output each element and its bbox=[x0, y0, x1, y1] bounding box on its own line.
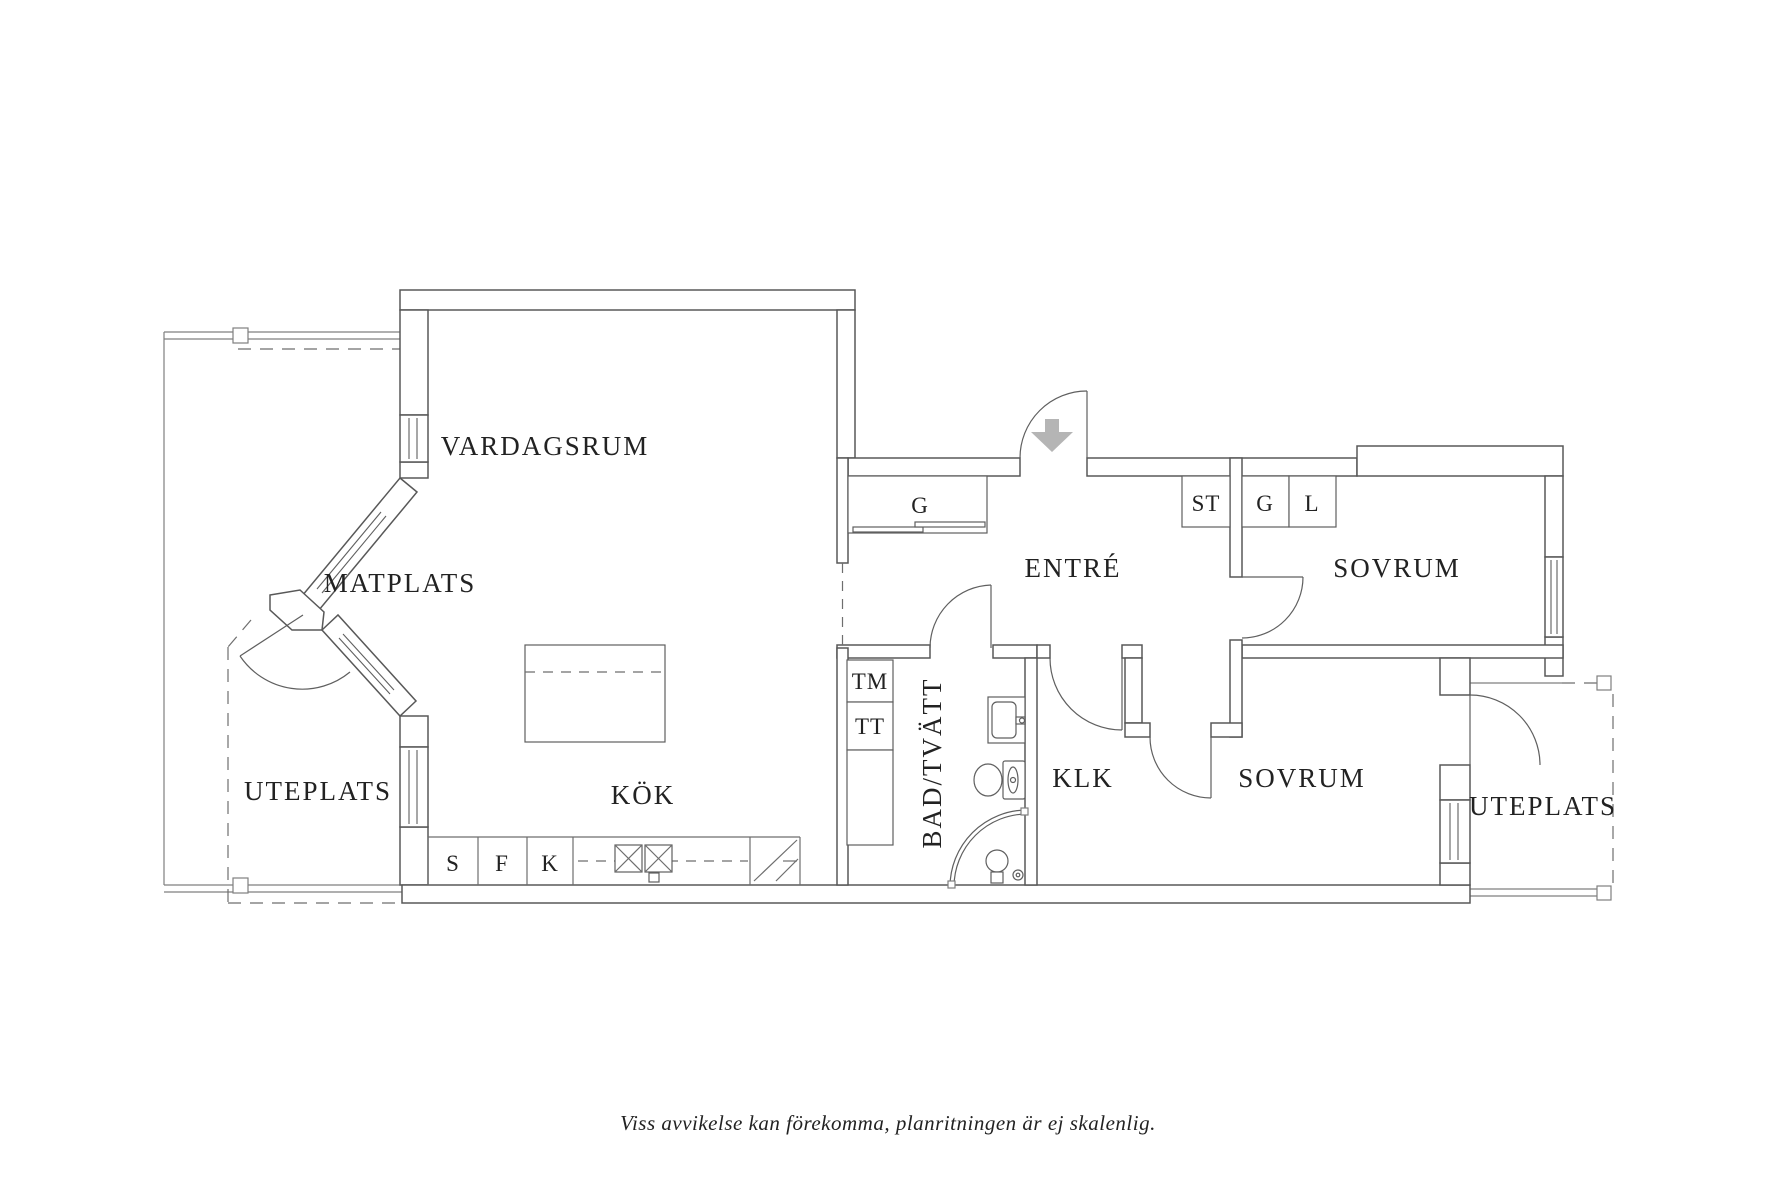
patio-right-door bbox=[1470, 695, 1540, 765]
bedroom-bottom-door bbox=[1150, 737, 1211, 798]
window bbox=[1545, 557, 1563, 637]
cabinet-label-s: S bbox=[446, 851, 460, 876]
window bbox=[1440, 800, 1470, 863]
entrance-arrow-icon bbox=[1031, 419, 1073, 452]
cabinet-label-st: ST bbox=[1192, 491, 1221, 516]
bedroom-top-door bbox=[1242, 577, 1303, 638]
patio-right-boundary bbox=[1470, 676, 1613, 900]
klk-door bbox=[1050, 658, 1122, 730]
room-label-kitchen: KÖK bbox=[611, 780, 676, 810]
appliance-label-tm: TM bbox=[852, 669, 889, 694]
room-label-patio-right: UTEPLATS bbox=[1469, 791, 1617, 821]
kitchen-sink bbox=[615, 845, 672, 882]
toilet-icon bbox=[974, 761, 1025, 799]
window bbox=[400, 415, 428, 462]
window bbox=[400, 747, 428, 827]
cabinet-label-g-entry: G bbox=[911, 493, 929, 518]
railing-post-marker bbox=[233, 878, 248, 893]
cabinet-label-l: L bbox=[1304, 491, 1319, 516]
room-label-dining: MATPLATS bbox=[324, 568, 477, 598]
shower-icon bbox=[948, 808, 1028, 888]
cabinet-label-f: F bbox=[495, 851, 509, 876]
room-label-klk: KLK bbox=[1052, 763, 1114, 793]
kitchen-fixtures bbox=[428, 645, 800, 885]
room-label-living: VARDAGSRUM bbox=[441, 431, 650, 461]
room-label-patio-left: UTEPLATS bbox=[244, 776, 392, 806]
cabinet-label-k: K bbox=[541, 851, 559, 876]
disclaimer-caption: Viss avvikelse kan förekomma, planritnin… bbox=[620, 1111, 1156, 1135]
railing-post-marker bbox=[1597, 886, 1611, 900]
stove-icon bbox=[754, 840, 798, 881]
cabinet-label-g: G bbox=[1256, 491, 1274, 516]
room-label-bedroom-top: SOVRUM bbox=[1333, 553, 1461, 583]
railing-post-marker bbox=[1597, 676, 1611, 690]
railing-post-marker bbox=[233, 328, 248, 343]
faucet-icon bbox=[649, 873, 659, 882]
room-label-bedroom-bottom: SOVRUM bbox=[1238, 763, 1366, 793]
sink-icon bbox=[988, 697, 1025, 743]
room-label-bath: BAD/TVÄTT bbox=[917, 678, 947, 849]
bathroom-door bbox=[930, 585, 991, 648]
room-label-entry: ENTRÉ bbox=[1025, 553, 1122, 583]
floor-plan: VARDAGSRUM MATPLATS KÖK ENTRÉ SOVRUM SOV… bbox=[0, 0, 1780, 1187]
appliance-label-tt: TT bbox=[855, 714, 885, 739]
kitchen-island bbox=[525, 645, 665, 742]
bathroom-bench bbox=[847, 750, 893, 845]
